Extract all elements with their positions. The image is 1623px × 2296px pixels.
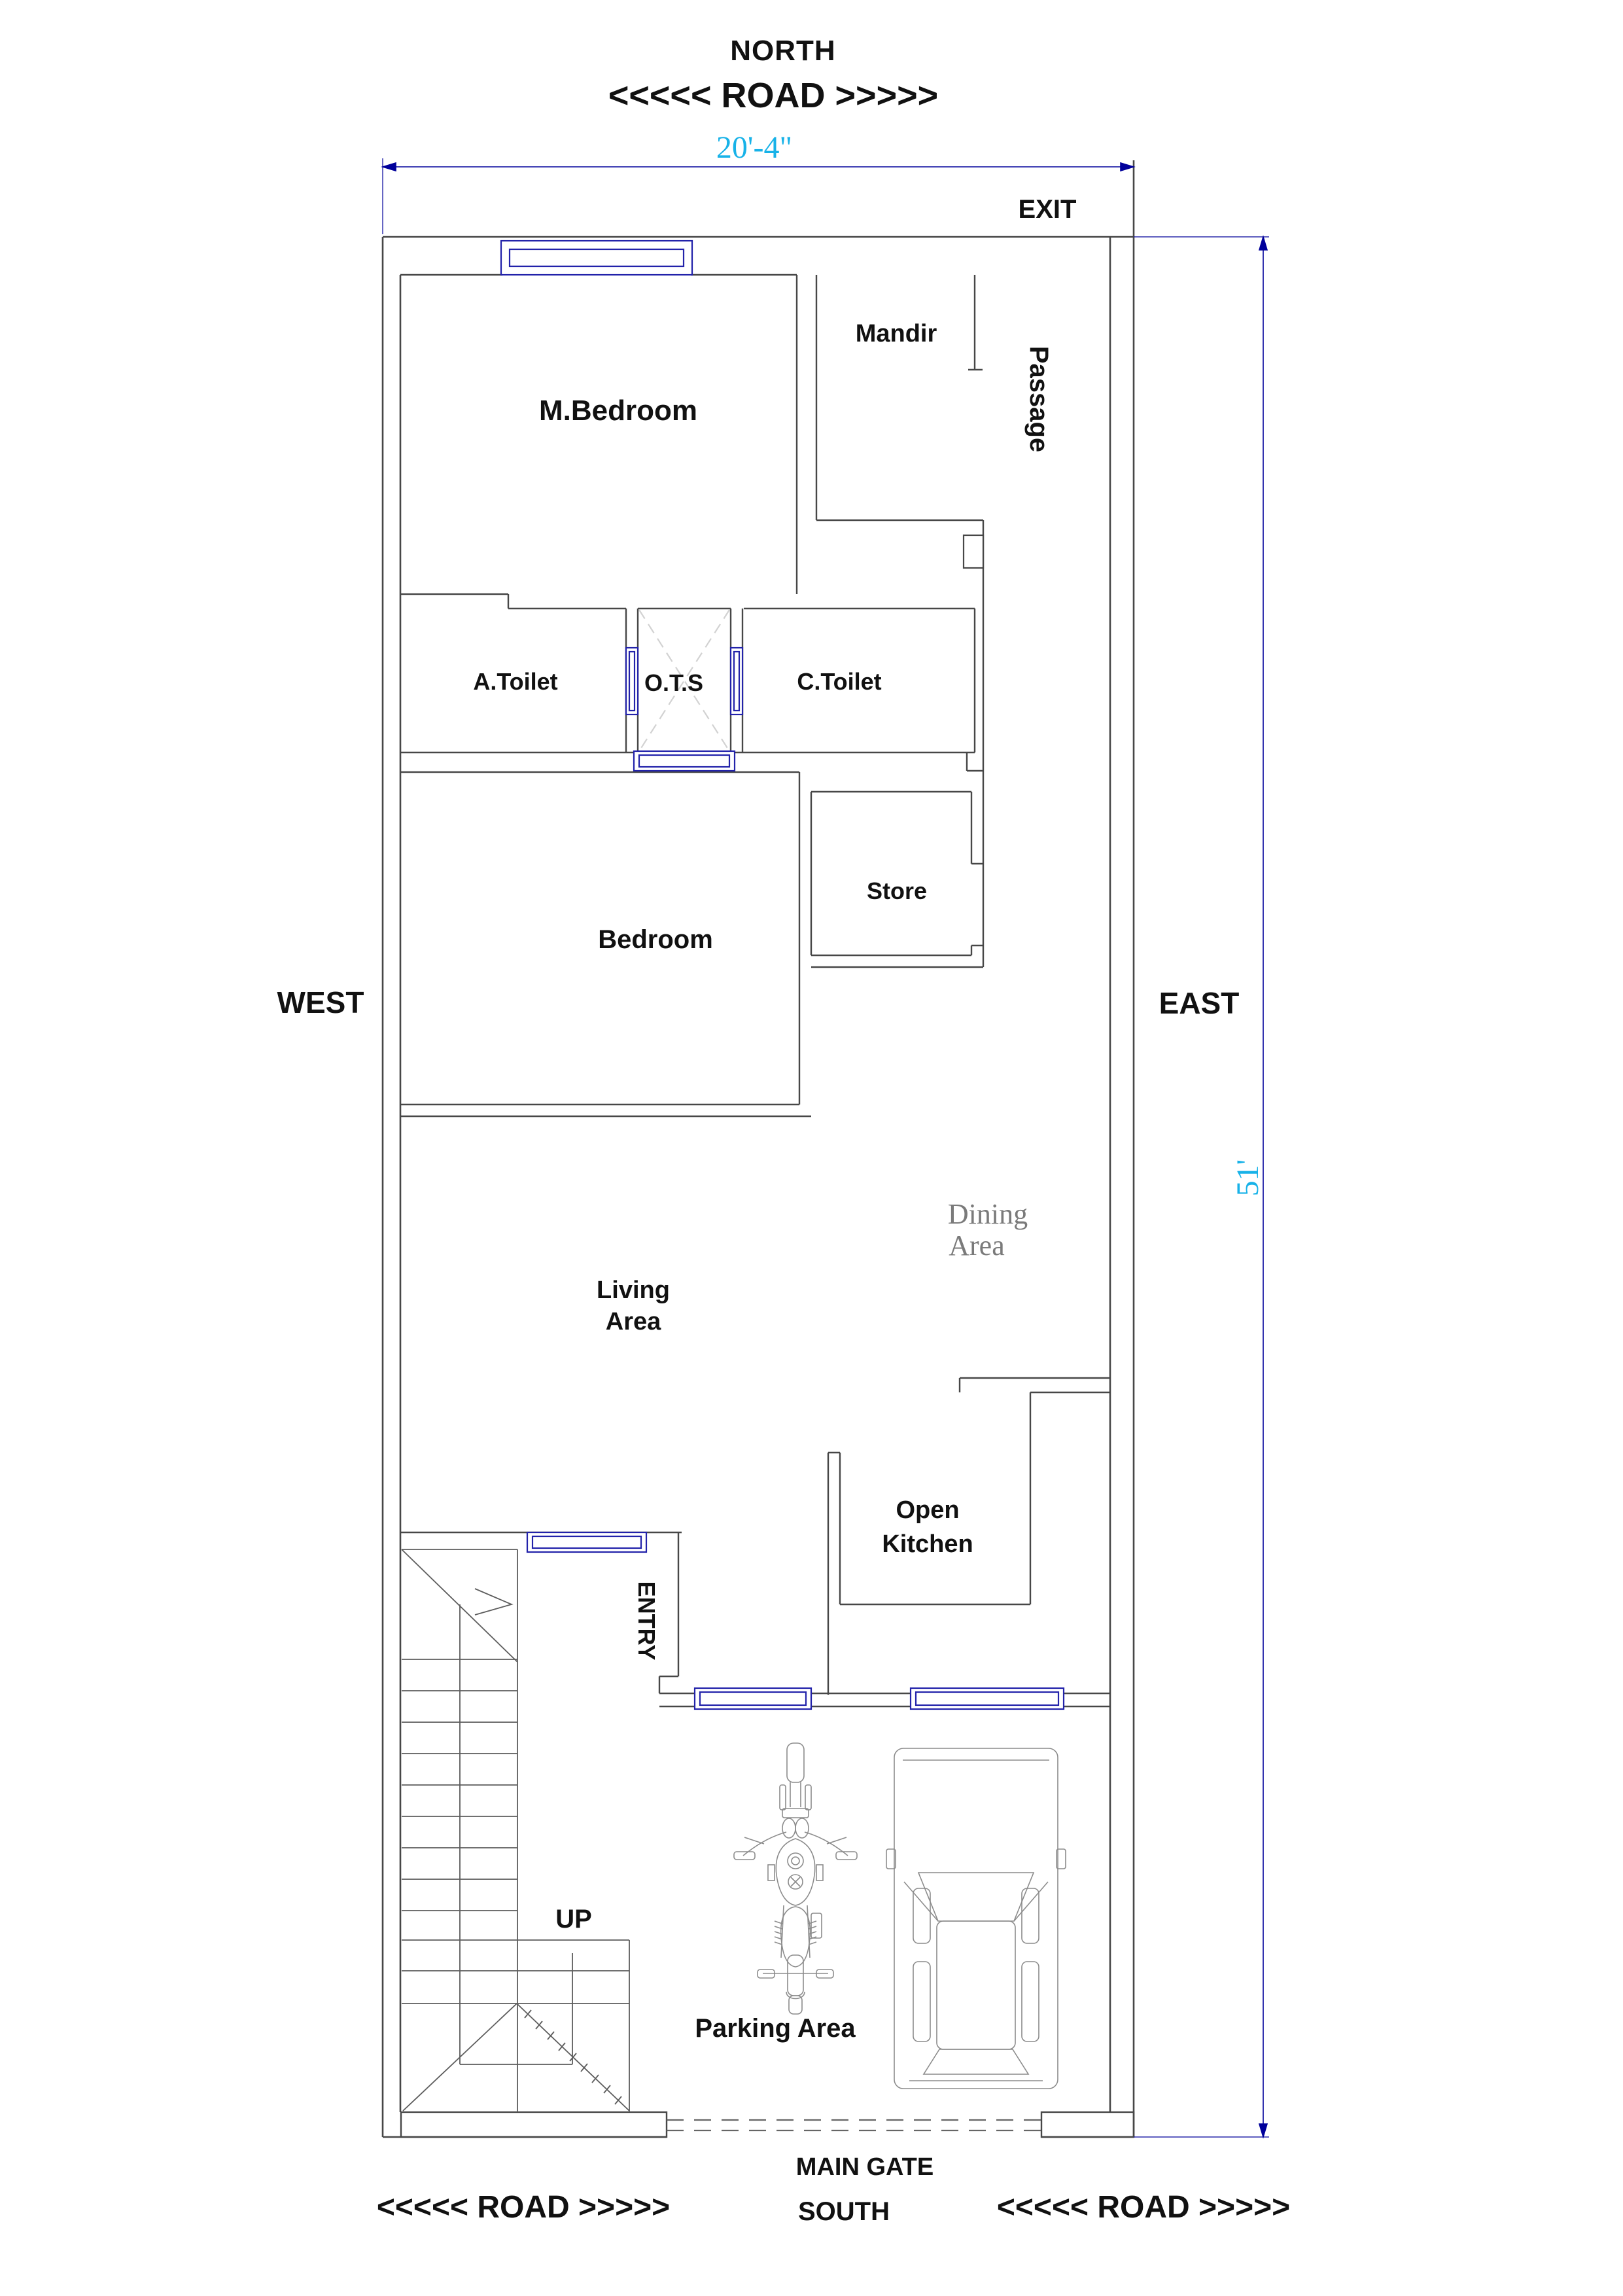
floor-plan-canvas: NORTH <<<<< ROAD >>>>> 20'-4" EXIT M.Bed… (0, 0, 1623, 2296)
room-label-ots: O.T.S (644, 671, 703, 695)
road-bottom-right-label: <<<<< ROAD >>>>> (997, 2192, 1290, 2223)
boundary-walls (383, 160, 1134, 2137)
plot-width-dimension: 20'-4" (716, 132, 792, 164)
main-gate-label: MAIN GATE (796, 2155, 934, 2180)
exit-label: EXIT (1019, 196, 1077, 222)
room-label-kitchen-line2: Kitchen (882, 1532, 973, 1557)
main-gate-dashes-icon (667, 2120, 1041, 2130)
road-top-label: <<<<< ROAD >>>>> (608, 78, 938, 113)
north-label: NORTH (730, 37, 835, 65)
south-label: SOUTH (798, 2199, 890, 2225)
plan-linework (0, 0, 1623, 2296)
entry-label: ENTRY (635, 1581, 658, 1661)
window-frames (501, 241, 1064, 1709)
room-label-bedroom: Bedroom (598, 927, 713, 953)
room-label-m-bedroom: M.Bedroom (539, 397, 697, 425)
east-label: EAST (1159, 988, 1240, 1018)
staircase-icon (402, 1549, 629, 2112)
road-bottom-left-label: <<<<< ROAD >>>>> (377, 2192, 670, 2223)
room-label-c-toilet: C.Toilet (797, 670, 881, 694)
room-label-store: Store (867, 879, 927, 903)
motorcycle-icon (734, 1743, 857, 2014)
room-label-a-toilet: A.Toilet (473, 670, 557, 694)
up-label: UP (555, 1906, 592, 1932)
car-icon (886, 1748, 1066, 2089)
room-label-mandir: Mandir (856, 321, 937, 346)
room-label-dining-line1: Dining (948, 1200, 1028, 1229)
room-label-kitchen-line1: Open (896, 1498, 959, 1523)
parking-area-label: Parking Area (695, 2015, 855, 2041)
plot-height-dimension: 51' (1232, 1159, 1264, 1197)
room-label-passage: Passage (1026, 346, 1052, 452)
room-label-dining-line2: Area (949, 1231, 1005, 1260)
room-label-living-line1: Living (597, 1278, 670, 1303)
west-label: WEST (277, 987, 364, 1017)
room-label-living-line2: Area (606, 1309, 661, 1334)
